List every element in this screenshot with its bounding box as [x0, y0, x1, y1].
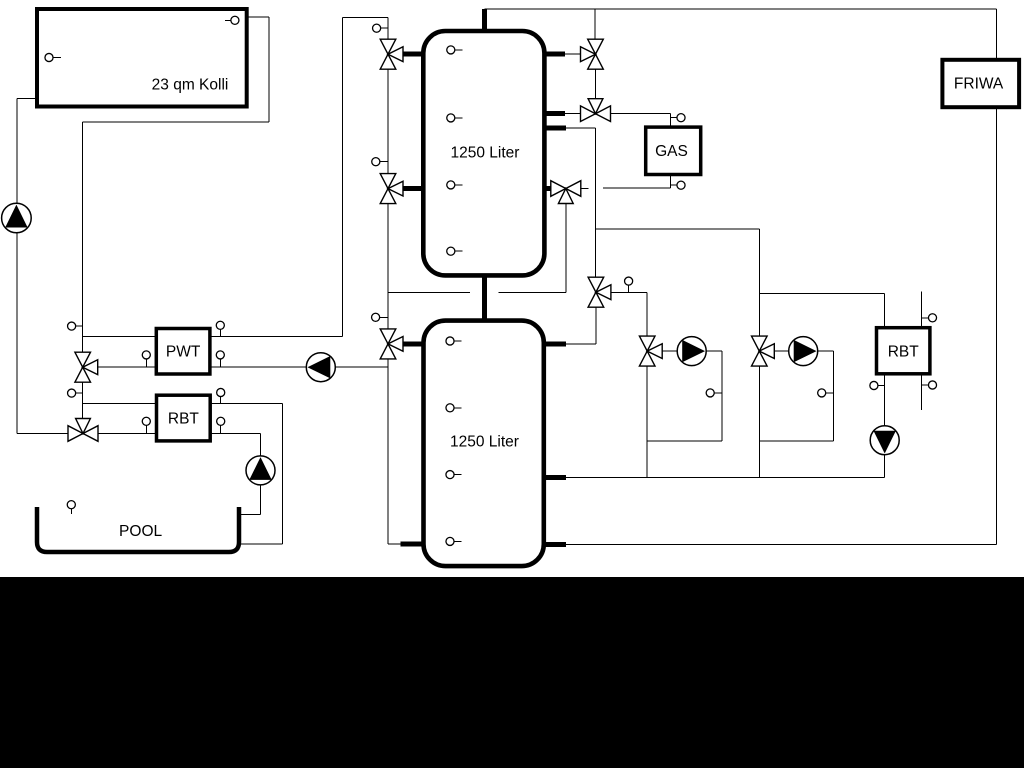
svg-text:POOL: POOL: [119, 523, 162, 540]
svg-text:1250 Liter: 1250 Liter: [451, 144, 520, 161]
svg-text:RBT: RBT: [888, 343, 920, 360]
svg-text:PWT: PWT: [166, 344, 201, 361]
svg-text:23 qm Kolli: 23 qm Kolli: [152, 77, 229, 94]
svg-text:RBT: RBT: [168, 411, 200, 428]
svg-text:FRIWA: FRIWA: [954, 76, 1004, 93]
svg-text:1250 Liter: 1250 Liter: [450, 434, 519, 451]
svg-text:GAS: GAS: [655, 143, 688, 160]
